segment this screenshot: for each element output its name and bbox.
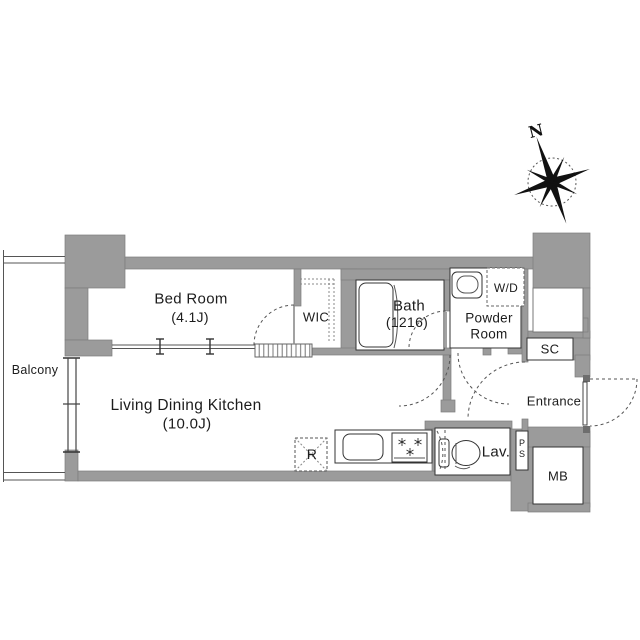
door-jamb (583, 375, 590, 382)
fixture-label-pipe-space: PS (518, 438, 526, 461)
room-label-entrance: Entrance (527, 394, 581, 409)
hall-door-arc (468, 362, 525, 419)
floor-plan: N Balcony Bed Room (4.1J) WIC Bath (1216… (0, 0, 640, 640)
room-size-bath: (1216) (386, 314, 428, 330)
room-label-bath: Bath (393, 298, 425, 315)
room-label-lavatory: Lav. (482, 444, 510, 461)
accordion-partition (255, 344, 312, 357)
vanity-sink-icon (452, 272, 482, 298)
room-label-powder-line1: Powder (465, 311, 513, 326)
room-label-balcony: Balcony (12, 363, 59, 377)
sliding-door-track (112, 339, 255, 354)
adjacent-space-box (533, 288, 583, 332)
room-label-bedroom: Bed Room (154, 291, 227, 308)
fixture-label-shoe-closet: SC (541, 342, 560, 357)
door-jamb (583, 426, 590, 433)
kitchen-sink-icon (343, 434, 383, 460)
room-label-wic: WIC (303, 310, 329, 325)
entrance-door (583, 379, 637, 426)
fixture-label-meter-box: MB (548, 469, 568, 484)
room-size-bedroom: (4.1J) (171, 309, 209, 325)
room-size-ldk: (10.0J) (163, 416, 212, 433)
balcony-window-icon (63, 358, 80, 452)
fixture-label-refrigerator: R (307, 446, 317, 462)
ldk-door-arc (399, 355, 450, 406)
room-label-powder-line2: Room (470, 327, 507, 342)
room-label-ldk: Living Dining Kitchen (110, 397, 261, 415)
powder-door-arc (458, 353, 509, 404)
compass-rose-icon (499, 124, 605, 237)
wic-door (254, 305, 294, 345)
kitchen-counter (335, 430, 432, 463)
fixture-label-washer-dryer: W/D (494, 281, 518, 295)
stove-icon (392, 433, 427, 462)
